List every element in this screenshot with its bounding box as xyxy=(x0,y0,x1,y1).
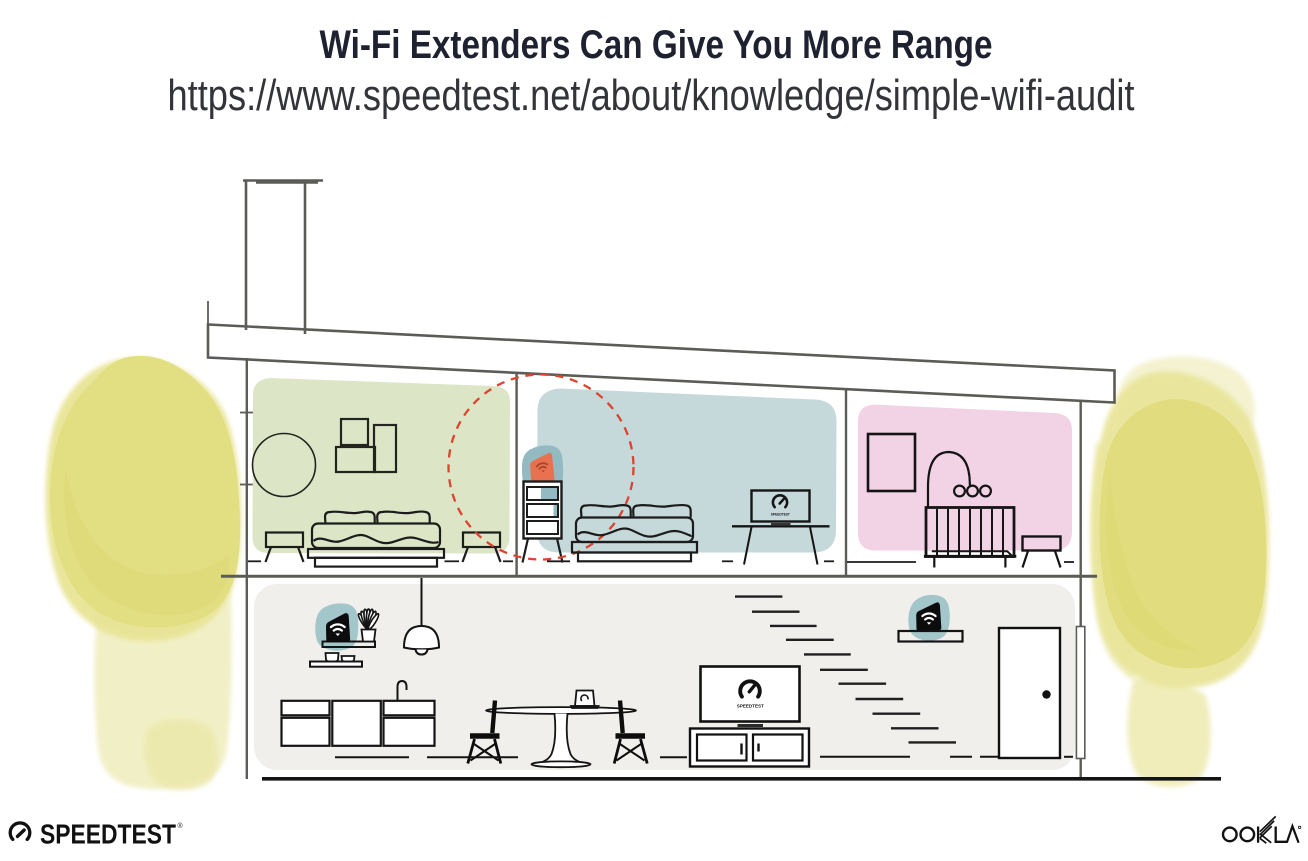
svg-text:Wi-Fi Extenders Can Give You M: Wi-Fi Extenders Can Give You More Range xyxy=(320,23,993,67)
svg-text:SPEEDTEST: SPEEDTEST xyxy=(737,704,764,709)
svg-text:®: ® xyxy=(178,822,184,830)
svg-text:SPEEDTEST: SPEEDTEST xyxy=(40,819,176,850)
svg-text:SPEEDTEST: SPEEDTEST xyxy=(771,512,791,517)
svg-text:https://www.speedtest.net/abou: https://www.speedtest.net/about/knowledg… xyxy=(168,71,1135,120)
